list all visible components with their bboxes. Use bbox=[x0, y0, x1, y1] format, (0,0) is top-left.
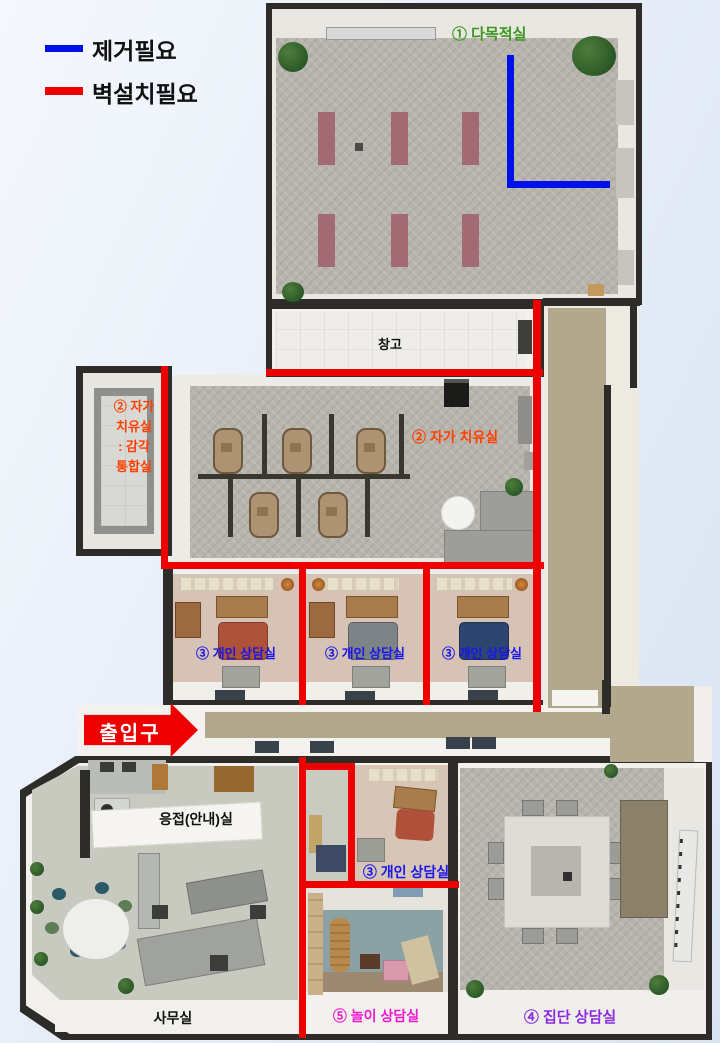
install-wall-line bbox=[161, 562, 544, 569]
recliner-chair bbox=[318, 492, 348, 538]
appliance bbox=[100, 762, 114, 772]
table-square-center bbox=[531, 846, 581, 896]
corridor-door bbox=[552, 690, 598, 706]
curtain bbox=[180, 577, 274, 591]
exercise-mat bbox=[318, 112, 335, 165]
legend-install-line-swatch bbox=[45, 87, 83, 95]
plant-icon bbox=[572, 36, 616, 76]
recliner-chair bbox=[213, 428, 243, 474]
recliner-chair bbox=[249, 492, 279, 538]
chair bbox=[488, 842, 504, 864]
office-inner-wall bbox=[80, 770, 90, 858]
install-wall-line bbox=[423, 569, 430, 705]
chair bbox=[45, 922, 59, 934]
chair bbox=[556, 928, 578, 944]
install-wall-line bbox=[533, 300, 541, 712]
right-corridor-wood bbox=[548, 308, 606, 708]
plant-icon bbox=[282, 282, 304, 302]
lamp-icon bbox=[312, 578, 325, 591]
office-chair bbox=[210, 955, 228, 971]
storage-box bbox=[588, 284, 604, 296]
sofa bbox=[395, 809, 435, 842]
plant-icon bbox=[34, 952, 48, 966]
exercise-mat bbox=[462, 112, 479, 165]
floor-marker bbox=[355, 143, 363, 151]
booth-partition bbox=[365, 479, 370, 537]
exercise-mat bbox=[391, 112, 408, 165]
desk bbox=[457, 596, 509, 618]
storage-shelf bbox=[518, 320, 532, 354]
plant-icon bbox=[278, 42, 308, 72]
install-wall-line bbox=[299, 881, 459, 888]
curtain bbox=[313, 577, 400, 591]
side-desk bbox=[309, 602, 335, 638]
group-room-left-wall bbox=[448, 757, 458, 1038]
plant-icon bbox=[30, 862, 44, 876]
legend-install-label: 벽설치필요 bbox=[92, 75, 198, 109]
appliance bbox=[122, 762, 136, 772]
multipurpose-label: ① 다목적실 bbox=[452, 23, 526, 44]
sensory-label-line: ② 자가 bbox=[103, 397, 165, 417]
play-room-label: ⑤ 놀이 상담실 bbox=[308, 1006, 444, 1026]
floorplan-canvas: 제거필요 벽설치필요 ① 다목적실 창고 ② 자가 치유실 : 감각 통합실 bbox=[0, 0, 720, 1043]
round-table bbox=[62, 898, 130, 960]
pink-toy-box bbox=[383, 960, 409, 981]
corridor-wall bbox=[543, 298, 640, 306]
lamp-icon bbox=[515, 578, 528, 591]
corridor-wall bbox=[604, 385, 611, 707]
chair bbox=[488, 878, 504, 900]
sensory-label-line: 통합실 bbox=[103, 457, 165, 477]
booth-partition bbox=[228, 479, 233, 537]
install-wall-line bbox=[299, 763, 355, 770]
legend-remove-label: 제거필요 bbox=[92, 32, 177, 66]
curtain bbox=[368, 768, 440, 782]
curtain bbox=[436, 577, 513, 591]
corridor-wall-stub bbox=[602, 680, 610, 714]
office-chair bbox=[152, 905, 168, 919]
desk bbox=[216, 596, 268, 618]
booth-partition bbox=[399, 414, 404, 478]
doormat bbox=[255, 741, 279, 753]
speaker-box bbox=[444, 379, 469, 407]
corridor-edge bbox=[694, 686, 712, 762]
round-rug bbox=[441, 496, 475, 530]
exercise-mat bbox=[318, 214, 335, 267]
plant-icon bbox=[466, 980, 484, 998]
legend-remove-line-swatch bbox=[45, 45, 83, 52]
remove-wall-line-horizontal bbox=[507, 181, 610, 188]
wall-panel bbox=[518, 396, 532, 444]
counseling-room-label: ③ 개인 상담실 bbox=[172, 643, 300, 662]
chair bbox=[95, 882, 109, 894]
sensory-label: ② 자가 치유실 : 감각 통합실 bbox=[103, 397, 165, 477]
exercise-mat bbox=[462, 214, 479, 267]
desk bbox=[346, 596, 398, 618]
remove-wall-line-vertical bbox=[507, 55, 514, 187]
wall-shelf bbox=[616, 80, 634, 125]
table-center-item bbox=[563, 872, 572, 881]
storage-label: 창고 bbox=[360, 334, 420, 353]
counseling-room-label: ③ 개인 상담실 bbox=[306, 643, 424, 662]
install-wall-line bbox=[299, 757, 306, 1038]
cabinet bbox=[222, 666, 260, 688]
cabinet bbox=[357, 838, 385, 862]
whiteboard bbox=[326, 27, 436, 40]
office-chair bbox=[250, 905, 266, 919]
small-counseling-label: ③ 개인 상담실 bbox=[356, 862, 456, 882]
chair bbox=[522, 800, 544, 816]
sensory-label-line: : 감각 bbox=[103, 437, 165, 457]
booth-partition bbox=[262, 414, 267, 478]
plant-icon bbox=[118, 978, 134, 994]
corridor-top-wall bbox=[163, 700, 543, 705]
floor-mat bbox=[316, 845, 346, 872]
corridor-wall bbox=[630, 302, 637, 388]
counseling-room-label: ③ 개인 상담실 bbox=[430, 643, 534, 662]
side-desk bbox=[175, 602, 201, 638]
install-wall-line bbox=[299, 569, 306, 705]
row-left-wall bbox=[163, 569, 173, 703]
wood-cabinet bbox=[214, 766, 254, 792]
chair bbox=[52, 888, 66, 900]
booth-partition bbox=[296, 479, 301, 537]
doormat bbox=[472, 737, 496, 749]
group-room-label: ④ 집단 상담실 bbox=[495, 1006, 645, 1027]
wall-shelf bbox=[618, 250, 634, 285]
cabinet bbox=[352, 666, 390, 688]
plant-icon bbox=[30, 900, 44, 914]
recliner-chair bbox=[356, 428, 386, 474]
install-wall-line bbox=[348, 763, 355, 888]
exercise-mat bbox=[391, 214, 408, 267]
reception-label: 응접(안내)실 bbox=[148, 809, 244, 829]
entrance-label: 출입구 bbox=[90, 717, 170, 746]
lamp-icon bbox=[281, 578, 294, 591]
corridor-wood-band bbox=[610, 686, 694, 762]
wood-lounger bbox=[330, 918, 350, 972]
legend: 제거필요 벽설치필요 bbox=[40, 25, 260, 115]
chair bbox=[556, 800, 578, 816]
doormat bbox=[446, 737, 470, 749]
wardrobe bbox=[308, 893, 323, 995]
sensory-label-line: 치유실 bbox=[103, 417, 165, 437]
storage-cabinet bbox=[620, 800, 668, 918]
doormat bbox=[468, 690, 498, 700]
plant-icon bbox=[604, 764, 618, 778]
wall-shelf bbox=[616, 148, 634, 198]
plant-icon bbox=[649, 975, 669, 995]
recliner-chair bbox=[282, 428, 312, 474]
office-label: 사무실 bbox=[133, 1008, 213, 1028]
cabinet bbox=[468, 666, 506, 688]
chair bbox=[522, 928, 544, 944]
sofa-section bbox=[480, 491, 539, 535]
plant-icon bbox=[505, 478, 523, 496]
doormat bbox=[215, 690, 245, 700]
corridor-wood-band bbox=[205, 712, 637, 738]
wood-cabinet bbox=[152, 764, 168, 790]
doormat bbox=[310, 741, 334, 753]
booth-partition bbox=[329, 414, 334, 478]
toy-box bbox=[360, 954, 380, 969]
install-wall-line bbox=[266, 369, 543, 376]
healing-room-label: ② 자가 치유실 bbox=[412, 427, 498, 447]
